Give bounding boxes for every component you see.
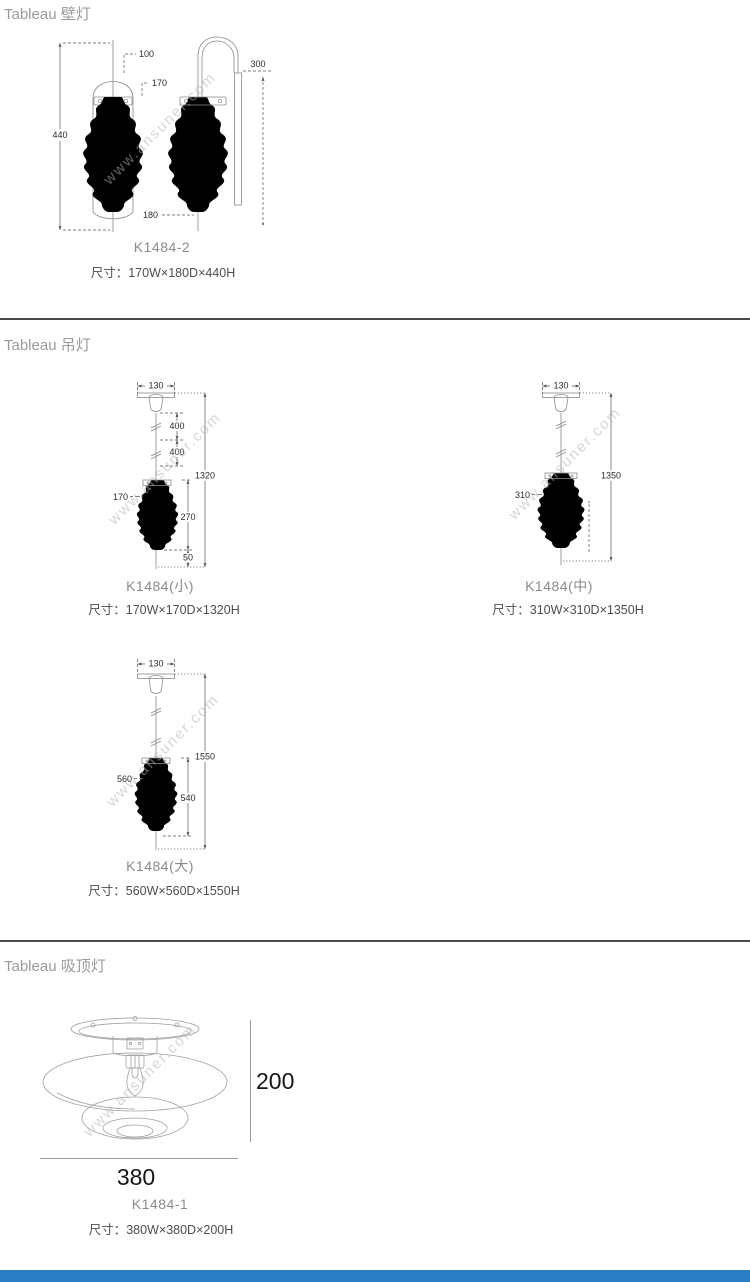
dim-label-440: 440 (52, 130, 67, 140)
dimension-180: 180 (143, 210, 194, 220)
dim-label-130: 130 (148, 659, 163, 669)
dim-label-170: 170 (152, 78, 167, 88)
model-label-pendant-small: K1484(小) (60, 576, 260, 596)
dim-label-400: 400 (169, 421, 184, 431)
dim-label-300: 300 (250, 59, 265, 69)
footer-bar (0, 1270, 750, 1282)
model-label-wall: K1484-2 (62, 239, 262, 255)
spec-sheet-page: Tableau 壁灯 440 100 (0, 0, 750, 1282)
dimension-tip-50: 50 (181, 550, 195, 567)
dimension-170: 170 (142, 78, 167, 96)
dim-label-540: 540 (180, 793, 195, 803)
dim-label-100: 100 (139, 49, 154, 59)
size-label-pendant-small: 尺寸：170W×170D×1320H (54, 599, 274, 618)
dim-label-1320: 1320 (195, 471, 215, 481)
size-label-pendant-medium: 尺寸：310W×310D×1350H (458, 599, 678, 618)
dim-label-1350: 1350 (601, 471, 621, 481)
section-header-wall-lamp: Tableau 壁灯 (4, 3, 91, 24)
dimension-wire-400-1: 400 (160, 413, 186, 440)
model-label-pendant-medium: K1484(中) (459, 576, 659, 596)
dim-label-380: 380 (86, 1164, 186, 1191)
model-label-pendant-large: K1484(大) (60, 856, 260, 876)
dim-label-270: 270 (180, 512, 195, 522)
dimension-line-width-380 (40, 1158, 238, 1159)
model-label-ceiling: K1484-1 (60, 1196, 260, 1212)
dim-label-1550: 1550 (195, 752, 215, 762)
wall-lamp-front-view (83, 40, 143, 232)
shade-edge-tick (588, 501, 590, 553)
size-label-pendant-large: 尺寸：560W×560D×1550H (54, 880, 274, 899)
dimension-line-height-200 (250, 1020, 251, 1142)
dimension-canopy-130: 130 (138, 380, 175, 394)
dimension-canopy-130: 130 (138, 658, 175, 672)
section-header-pendant-lamp: Tableau 吊灯 (4, 334, 91, 355)
dim-label-130: 130 (553, 381, 568, 391)
dimension-canopy-130: 130 (543, 380, 580, 394)
dim-label-180: 180 (143, 210, 158, 220)
section-header-ceiling-lamp: Tableau 吸顶灯 (4, 955, 106, 976)
section-divider (0, 318, 750, 320)
size-label-ceiling: 尺寸：380W×380D×200H (51, 1219, 271, 1238)
size-label-wall: 尺寸：170W×180D×440H (53, 262, 273, 281)
dimension-300: 300 (243, 59, 272, 225)
dim-label-50: 50 (183, 553, 193, 563)
dimension-100: 100 (124, 49, 154, 73)
dim-label-130: 130 (148, 381, 163, 391)
dim-label-200: 200 (256, 1068, 294, 1095)
section-divider (0, 940, 750, 942)
